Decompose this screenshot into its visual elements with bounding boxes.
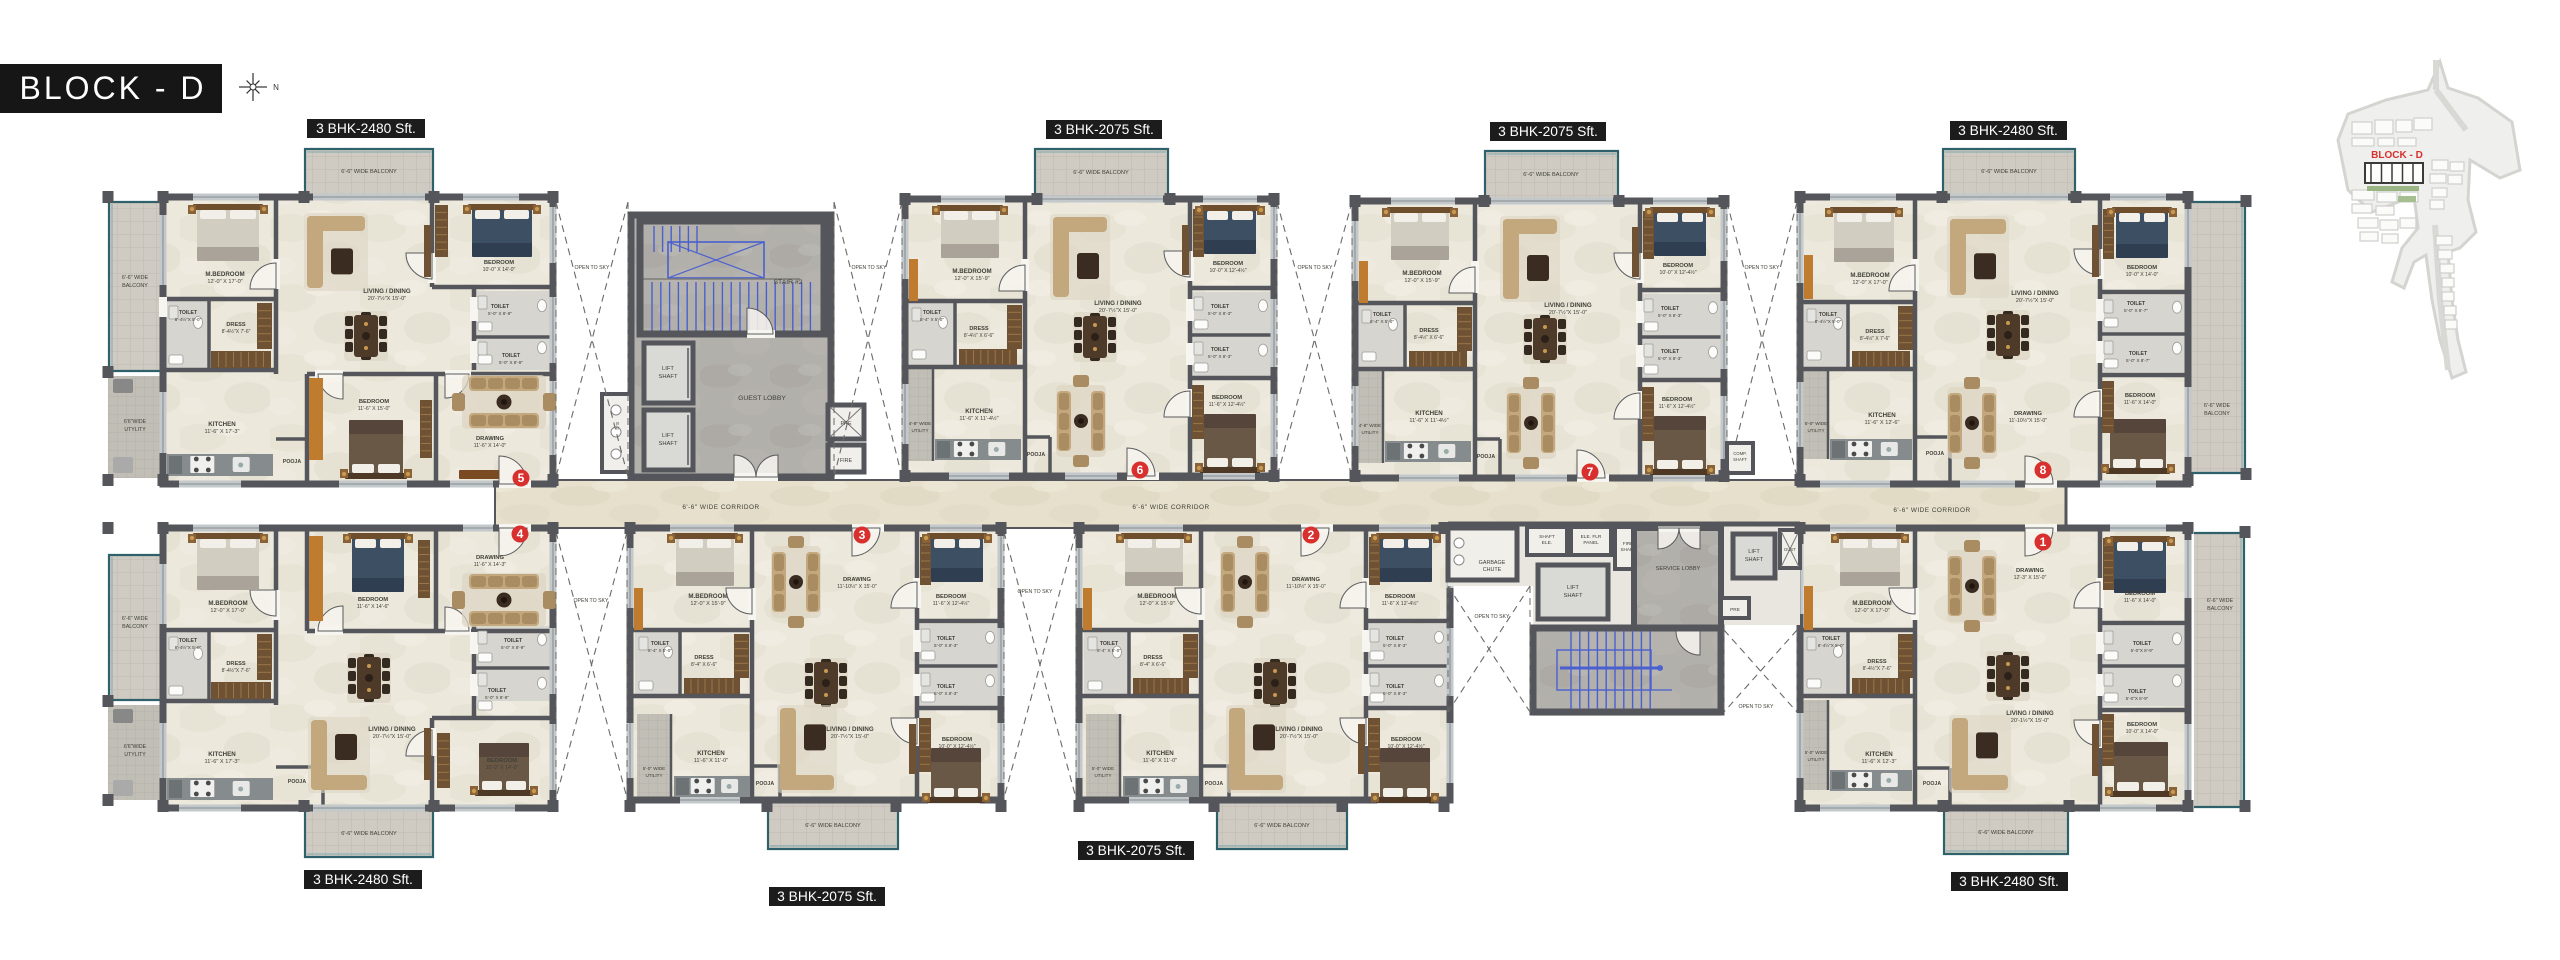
svg-text:LIVING / DINING: LIVING / DINING [363,288,411,295]
svg-text:DRAWING: DRAWING [476,555,505,561]
svg-text:M.BEDROOM: M.BEDROOM [1850,272,1889,279]
svg-text:UTILITY: UTILITY [911,428,928,433]
svg-text:PANEL: PANEL [1583,540,1599,546]
svg-text:DRESS: DRESS [1419,328,1439,334]
svg-text:DRESS: DRESS [226,322,246,328]
svg-text:3 BHK-2075 Sft.: 3 BHK-2075 Sft. [777,889,877,904]
svg-text:11'-6" X 11'-0": 11'-6" X 11'-0" [1143,758,1178,764]
svg-text:5'-0" X 8'-3": 5'-0" X 8'-3" [1658,313,1682,318]
svg-text:BEDROOM: BEDROOM [2125,393,2155,399]
svg-text:8'-4½"X 5'-0": 8'-4½"X 5'-0" [175,644,202,650]
svg-text:BEDROOM: BEDROOM [2127,722,2157,728]
svg-text:6'6"WIDE: 6'6"WIDE [124,744,147,750]
svg-text:6'-6" WIDE BALCONY: 6'-6" WIDE BALCONY [1254,823,1310,829]
svg-text:2: 2 [1308,528,1315,542]
svg-text:POOJA: POOJA [1027,452,1045,458]
svg-text:7: 7 [1587,465,1594,479]
svg-text:11'-6" X 12'-6": 11'-6" X 12'-6" [1865,420,1900,426]
svg-text:LIFT: LIFT [1748,549,1760,555]
svg-text:5'-0" X 8'-3": 5'-0" X 8'-3" [1658,356,1682,361]
svg-text:BLOCK - D: BLOCK - D [19,70,206,106]
svg-text:GARBAGE: GARBAGE [1479,560,1506,566]
svg-text:6'-6" WIDE BALCONY: 6'-6" WIDE BALCONY [1978,830,2034,836]
svg-text:BEDROOM: BEDROOM [484,260,514,266]
svg-text:DRESS: DRESS [1867,659,1887,665]
svg-text:BEDROOM: BEDROOM [487,758,517,764]
svg-text:12'-0" X 15'-9": 12'-0" X 15'-9" [954,276,989,282]
svg-text:8'-4½" X 7'-6": 8'-4½" X 7'-6" [1860,335,1890,342]
svg-text:OPEN TO SKY: OPEN TO SKY [852,265,888,271]
svg-text:GUEST LOBBY: GUEST LOBBY [738,395,786,402]
svg-text:POOJA: POOJA [1923,781,1941,787]
svg-text:KITCHEN: KITCHEN [697,750,725,757]
svg-text:DRESS: DRESS [969,326,989,332]
svg-text:FIRE: FIRE [840,458,853,464]
svg-text:BALCONY: BALCONY [2207,606,2233,612]
svg-text:BEDROOM: BEDROOM [358,597,388,603]
svg-text:KITCHEN: KITCHEN [1415,410,1443,417]
svg-text:10'-0" X 12'-4½": 10'-0" X 12'-4½" [1209,267,1246,274]
svg-text:5'-0" X 8'-9": 5'-0" X 8'-9" [488,311,512,316]
svg-text:5'-0" X 8'-9": 5'-0" X 8'-9" [501,645,525,650]
svg-text:PRE: PRE [1730,607,1740,613]
svg-text:10'-0" X 14'-0": 10'-0" X 14'-0" [2126,729,2159,735]
svg-text:OPEN TO SKY: OPEN TO SKY [1739,704,1775,710]
svg-text:TOILET: TOILET [2133,641,2152,647]
svg-text:11'-6" X 11'-4½": 11'-6" X 11'-4½" [959,415,998,422]
svg-text:TOILET: TOILET [2128,689,2147,695]
svg-text:TOILET: TOILET [651,641,670,647]
svg-text:6'-6" WIDE: 6'-6" WIDE [2204,403,2231,409]
svg-text:5'-0" X 8'-3": 5'-0" X 8'-3" [1208,354,1232,359]
svg-text:TOILET: TOILET [937,636,956,642]
svg-text:UTILITY: UTILITY [645,773,662,778]
svg-text:BALCONY: BALCONY [122,624,148,630]
svg-text:5'-0" X 8'-3": 5'-0" X 8'-3" [1383,643,1407,648]
svg-text:M.BEDROOM: M.BEDROOM [952,268,991,275]
svg-text:SHAFT: SHAFT [1733,457,1747,462]
svg-text:SERVICE LOBBY: SERVICE LOBBY [1656,566,1701,572]
svg-text:N: N [273,83,279,92]
svg-text:11'-10½"X 15'-0": 11'-10½"X 15'-0" [2009,417,2047,424]
svg-text:UTYLITY: UTYLITY [124,427,146,433]
svg-text:TOILET: TOILET [502,353,521,359]
svg-text:TOILET: TOILET [1373,312,1392,318]
svg-text:12'-0" X 15'-9": 12'-0" X 15'-9" [690,601,725,607]
svg-text:BEDROOM: BEDROOM [1213,261,1243,267]
svg-text:5'-0" X 8'-7": 5'-0" X 8'-7" [2126,358,2150,363]
svg-text:LIVING / DINING: LIVING / DINING [826,726,874,733]
svg-text:DRESS: DRESS [694,655,714,661]
svg-text:6: 6 [1137,463,1144,477]
svg-text:DRAWING: DRAWING [476,436,505,442]
svg-text:KITCHEN: KITCHEN [208,421,236,428]
svg-text:11'-6" X 12'-4½": 11'-6" X 12'-4½" [1209,401,1246,408]
svg-text:20'-7½"X 15'-0": 20'-7½"X 15'-0" [1099,307,1137,314]
svg-text:SHAFT: SHAFT [658,441,677,447]
svg-text:TOILET: TOILET [504,638,523,644]
svg-text:BEDROOM: BEDROOM [1391,737,1421,743]
svg-text:TOILET: TOILET [179,310,198,316]
svg-text:TOILET: TOILET [1661,349,1680,355]
svg-text:LIFT: LIFT [662,366,674,372]
svg-text:8'-4½"X 5'-0": 8'-4½"X 5'-0" [1818,642,1845,648]
svg-text:11'-6" X 14'-0": 11'-6" X 14'-0" [2124,598,2157,604]
svg-text:DRAWING: DRAWING [1292,577,1321,583]
svg-text:BEDROOM: BEDROOM [936,594,966,600]
svg-text:3 BHK-2075 Sft.: 3 BHK-2075 Sft. [1086,843,1186,858]
svg-text:DRESS: DRESS [226,661,246,667]
svg-text:COMP.: COMP. [1733,451,1746,456]
svg-text:12'-0" X 17'-0": 12'-0" X 17'-0" [207,279,242,285]
svg-text:3: 3 [859,528,866,542]
svg-text:M.BEDROOM: M.BEDROOM [208,600,247,607]
svg-text:M.BEDROOM: M.BEDROOM [1402,270,1441,277]
svg-text:5'-0" WIDE: 5'-0" WIDE [1092,766,1114,771]
svg-text:11'-10½" X 15'-0": 11'-10½" X 15'-0" [837,583,877,590]
svg-text:11'-6" X 11'-4½": 11'-6" X 11'-4½" [1409,417,1448,424]
svg-text:LIFT: LIFT [1567,585,1579,591]
svg-text:TOILET: TOILET [923,310,942,316]
svg-text:OPEN TO SKY: OPEN TO SKY [1475,614,1511,620]
svg-text:12'-0" X 15'-9": 12'-0" X 15'-9" [1404,278,1439,284]
svg-text:TOILET: TOILET [1819,312,1838,318]
svg-text:BEDROOM: BEDROOM [2125,591,2155,597]
svg-text:KITCHEN: KITCHEN [1146,750,1174,757]
svg-text:LIVING / DINING: LIVING / DINING [2011,290,2059,297]
svg-text:12'-0" X 17'-0": 12'-0" X 17'-0" [210,608,245,614]
svg-text:6'-6" WIDE: 6'-6" WIDE [122,616,149,622]
svg-text:SHAFT: SHAFT [1745,557,1764,563]
svg-text:12'-3" X 15'-0": 12'-3" X 15'-0" [2014,575,2047,581]
svg-text:DRAWING: DRAWING [843,577,872,583]
svg-text:TOILET: TOILET [491,304,510,310]
svg-text:5'-0" X 8'-3": 5'-0" X 8'-3" [934,643,958,648]
svg-text:8'-4" X 5'-0": 8'-4" X 5'-0" [920,317,944,322]
svg-text:4'-8" WIDE: 4'-8" WIDE [1359,423,1381,428]
svg-text:8: 8 [2040,463,2047,477]
svg-text:11'-6" X 12'-4½": 11'-6" X 12'-4½" [1659,403,1696,410]
svg-text:5'-0" WIDE: 5'-0" WIDE [1805,421,1827,426]
svg-text:5'-0" X 8'-3": 5'-0" X 8'-3" [934,691,958,696]
svg-text:5'-0" WIDE: 5'-0" WIDE [1805,750,1827,755]
svg-text:5'-0" X 8'-9": 5'-0" X 8'-9" [499,360,523,365]
svg-text:5: 5 [518,471,525,485]
svg-text:20'-7½"X 15'-0": 20'-7½"X 15'-0" [2016,297,2054,304]
svg-text:OPEN TO SKY: OPEN TO SKY [1298,265,1334,271]
svg-text:5'-0" X 8'-3": 5'-0" X 8'-3" [1383,691,1407,696]
svg-text:TOILET: TOILET [937,684,956,690]
svg-text:POOJA: POOJA [1926,451,1944,457]
svg-text:TOILET: TOILET [1661,306,1680,312]
svg-text:8'-4½"X 7'-6": 8'-4½"X 7'-6" [222,667,251,674]
svg-text:3 BHK-2075 Sft.: 3 BHK-2075 Sft. [1498,124,1598,139]
svg-text:3 BHK-2480 Sft.: 3 BHK-2480 Sft. [1958,123,2058,138]
svg-text:1: 1 [2040,535,2047,549]
svg-text:UTILITY: UTILITY [1094,773,1111,778]
svg-text:10'-0" X 14'-0": 10'-0" X 14'-0" [2126,272,2159,278]
svg-text:ELE. FLR: ELE. FLR [1581,534,1602,540]
svg-text:DUST: DUST [1784,547,1796,552]
svg-text:M.BEDROOM: M.BEDROOM [688,593,727,600]
svg-text:TOILET: TOILET [179,638,198,644]
svg-text:UTYLITY: UTYLITY [124,752,146,758]
svg-text:3 BHK-2480 Sft.: 3 BHK-2480 Sft. [316,121,416,136]
svg-text:DRAWING: DRAWING [2016,568,2045,574]
svg-text:5'-0"X 8'-9": 5'-0"X 8'-9" [2131,648,2154,653]
svg-text:M.BEDROOM: M.BEDROOM [205,271,244,278]
svg-text:8'-4½"X 7'-6": 8'-4½"X 7'-6" [222,328,251,335]
svg-text:4: 4 [517,527,524,541]
svg-text:10'-0" X 12'-4½": 10'-0" X 12'-4½" [1387,743,1424,750]
svg-text:BEDROOM: BEDROOM [1662,397,1692,403]
svg-text:10'-0" X 14'-0": 10'-0" X 14'-0" [483,267,516,273]
svg-text:BLOCK - D: BLOCK - D [2371,150,2423,161]
svg-text:UTILITY: UTILITY [1807,428,1824,433]
svg-text:TOILET: TOILET [488,688,507,694]
svg-text:6'-6" WIDE BALCONY: 6'-6" WIDE BALCONY [341,169,397,175]
svg-text:6'-6" WIDE CORRIDOR: 6'-6" WIDE CORRIDOR [1893,507,1970,514]
svg-text:DRAWING: DRAWING [2014,411,2043,417]
svg-text:LIFT: LIFT [662,433,674,439]
svg-text:BALCONY: BALCONY [122,283,148,289]
svg-text:20'-7½"X 15'-0": 20'-7½"X 15'-0" [368,295,406,302]
svg-text:M.BEDROOM: M.BEDROOM [1137,593,1176,600]
svg-text:11'-6" X 12'-4½": 11'-6" X 12'-4½" [1382,600,1419,607]
svg-text:KITCHEN: KITCHEN [965,408,993,415]
svg-text:UTILITY: UTILITY [1807,757,1824,762]
svg-text:BEDROOM: BEDROOM [1212,395,1242,401]
svg-text:3 BHK-2480 Sft.: 3 BHK-2480 Sft. [313,872,413,887]
svg-text:OPEN TO SKY: OPEN TO SKY [1018,589,1054,595]
svg-text:CHUTE: CHUTE [1483,567,1502,573]
svg-text:8'-4½" X 6'-6": 8'-4½" X 6'-6" [1414,334,1444,341]
svg-text:POOJA: POOJA [1477,454,1495,460]
svg-text:8'-4" X 6'-6": 8'-4" X 6'-6" [1140,662,1166,668]
svg-text:M.BEDROOM: M.BEDROOM [1852,600,1891,607]
svg-text:DRESS: DRESS [1143,655,1163,661]
svg-text:STAIR #2: STAIR #2 [774,279,803,286]
svg-text:3 BHK-2480 Sft.: 3 BHK-2480 Sft. [1959,874,2059,889]
svg-text:11'-6" X 17'-3": 11'-6" X 17'-3" [205,759,240,765]
svg-text:8'-4" X 6'-6": 8'-4" X 6'-6" [691,662,717,668]
svg-text:10'-0" X 12'-4½": 10'-0" X 12'-4½" [938,743,975,750]
svg-text:8'-4" X 5'-0": 8'-4" X 5'-0" [1370,319,1394,324]
svg-text:11'-6" X 17'-3": 11'-6" X 17'-3" [205,429,240,435]
svg-text:UTILITY: UTILITY [1361,430,1378,435]
svg-text:POOJA: POOJA [1205,781,1223,787]
svg-text:6'-6" WIDE CORRIDOR: 6'-6" WIDE CORRIDOR [682,504,759,511]
svg-text:5'-0"X 8'-9": 5'-0"X 8'-9" [2126,696,2149,701]
svg-text:TOILET: TOILET [1386,684,1405,690]
svg-text:TOILET: TOILET [2129,351,2148,357]
svg-text:20'-7½"X 15'-0": 20'-7½"X 15'-0" [831,733,869,740]
svg-text:5'-0" X 8'-7": 5'-0" X 8'-7" [2124,308,2148,313]
svg-text:8'-4" X 5'-0": 8'-4" X 5'-0" [648,648,672,653]
svg-text:TOILET: TOILET [1822,636,1841,642]
svg-text:KITCHEN: KITCHEN [208,751,236,758]
svg-text:6'6"WIDE: 6'6"WIDE [124,419,147,425]
svg-text:TOILET: TOILET [1100,641,1119,647]
svg-text:6'-6" WIDE CORRIDOR: 6'-6" WIDE CORRIDOR [1132,504,1209,511]
svg-text:11'-6" X 14'-6": 11'-6" X 14'-6" [357,604,390,610]
svg-text:BEDROOM: BEDROOM [1663,263,1693,269]
svg-text:5'-0" X 8'-9": 5'-0" X 8'-9" [485,695,509,700]
svg-text:3 BHK-2075 Sft.: 3 BHK-2075 Sft. [1054,122,1154,137]
svg-text:11'-6" X 12'-3": 11'-6" X 12'-3" [1862,759,1897,765]
svg-text:LIVING / DINING: LIVING / DINING [2006,710,2054,717]
svg-text:BEDROOM: BEDROOM [942,737,972,743]
svg-text:12'-0" X 17'-0": 12'-0" X 17'-0" [1854,608,1889,614]
svg-text:OPEN TO SKY: OPEN TO SKY [1745,265,1781,271]
svg-text:8'-4½" X 6'-6": 8'-4½" X 6'-6" [964,332,994,339]
svg-text:8'-4" X 5'-0": 8'-4" X 5'-0" [1097,648,1121,653]
svg-text:6'-6" WIDE BALCONY: 6'-6" WIDE BALCONY [341,831,397,837]
svg-text:10'-0" X 14'-0": 10'-0" X 14'-0" [486,765,519,771]
svg-text:11'-6" X 11'-0": 11'-6" X 11'-0" [694,758,729,764]
svg-text:SHAFT: SHAFT [658,374,677,380]
svg-text:SHAFT: SHAFT [1539,534,1555,540]
svg-text:ELE.: ELE. [1542,540,1552,546]
svg-text:LIVING / DINING: LIVING / DINING [368,726,416,733]
svg-text:6'-6" WIDE: 6'-6" WIDE [2207,598,2234,604]
svg-text:BALCONY: BALCONY [2204,411,2230,417]
svg-text:20'-7½"X 15'-0": 20'-7½"X 15'-0" [1280,733,1318,740]
svg-text:KITCHEN: KITCHEN [1868,412,1896,419]
svg-text:6'-6" WIDE: 6'-6" WIDE [122,275,149,281]
svg-text:20'-7½"X 15'-0": 20'-7½"X 15'-0" [373,733,411,740]
svg-text:20'-7½"X 15'-0": 20'-7½"X 15'-0" [1549,309,1587,316]
svg-text:POOJA: POOJA [756,781,774,787]
svg-text:POOJA: POOJA [283,459,301,465]
svg-text:11'-10½" X 15'-0": 11'-10½" X 15'-0" [1286,583,1326,590]
svg-text:11'-6" X 14'-0": 11'-6" X 14'-0" [2124,400,2157,406]
svg-text:BEDROOM: BEDROOM [1385,594,1415,600]
svg-text:LIVING / DINING: LIVING / DINING [1094,300,1142,307]
svg-text:12'-0" X 15'-9": 12'-0" X 15'-9" [1139,601,1174,607]
svg-text:11'-6" X 12'-4½": 11'-6" X 12'-4½" [933,600,970,607]
svg-text:TOILET: TOILET [1211,304,1230,310]
svg-text:SHAFT: SHAFT [1563,593,1582,599]
svg-text:LIVING / DINING: LIVING / DINING [1275,726,1323,733]
svg-text:12'-0" X 17'-0": 12'-0" X 17'-0" [1852,280,1887,286]
svg-text:6'-6" WIDE BALCONY: 6'-6" WIDE BALCONY [1073,170,1129,176]
svg-text:5'-0" X 8'-3": 5'-0" X 8'-3" [1208,311,1232,316]
svg-text:LIVING / DINING: LIVING / DINING [1544,302,1592,309]
svg-text:6'-6" WIDE BALCONY: 6'-6" WIDE BALCONY [805,823,861,829]
svg-text:OPEN TO SKY: OPEN TO SKY [575,265,611,271]
svg-text:TOILET: TOILET [1211,347,1230,353]
svg-text:11'-6" X 14'-3": 11'-6" X 14'-3" [474,562,507,568]
svg-text:20'-1½"X 15'-0": 20'-1½"X 15'-0" [2011,717,2049,724]
svg-text:TOILET: TOILET [2127,301,2146,307]
svg-text:5'-0" WIDE: 5'-0" WIDE [643,766,665,771]
svg-text:BEDROOM: BEDROOM [359,399,389,405]
svg-text:6'-6" WIDE BALCONY: 6'-6" WIDE BALCONY [1523,172,1579,178]
svg-text:8'-4½"X 7'-6": 8'-4½"X 7'-6" [1863,665,1892,672]
svg-text:11'-6" X 15'-0": 11'-6" X 15'-0" [358,406,391,412]
svg-text:BEDROOM: BEDROOM [2127,265,2157,271]
svg-text:6'-6" WIDE BALCONY: 6'-6" WIDE BALCONY [1981,169,2037,175]
svg-text:DRESS: DRESS [1865,329,1885,335]
svg-text:4'-8" WIDE: 4'-8" WIDE [909,421,931,426]
svg-text:OPEN TO SKY: OPEN TO SKY [574,598,610,604]
svg-text:10'-0" X 12'-4½": 10'-0" X 12'-4½" [1659,269,1696,276]
svg-text:8'-4½"X 5'-0": 8'-4½"X 5'-0" [175,316,202,322]
svg-text:TOILET: TOILET [1386,636,1405,642]
svg-text:8'-4½"X 5'-0": 8'-4½"X 5'-0" [1815,318,1842,324]
svg-text:POOJA: POOJA [288,779,306,785]
svg-text:KITCHEN: KITCHEN [1865,751,1893,758]
svg-text:11'-6" X 14'-0": 11'-6" X 14'-0" [474,443,507,449]
